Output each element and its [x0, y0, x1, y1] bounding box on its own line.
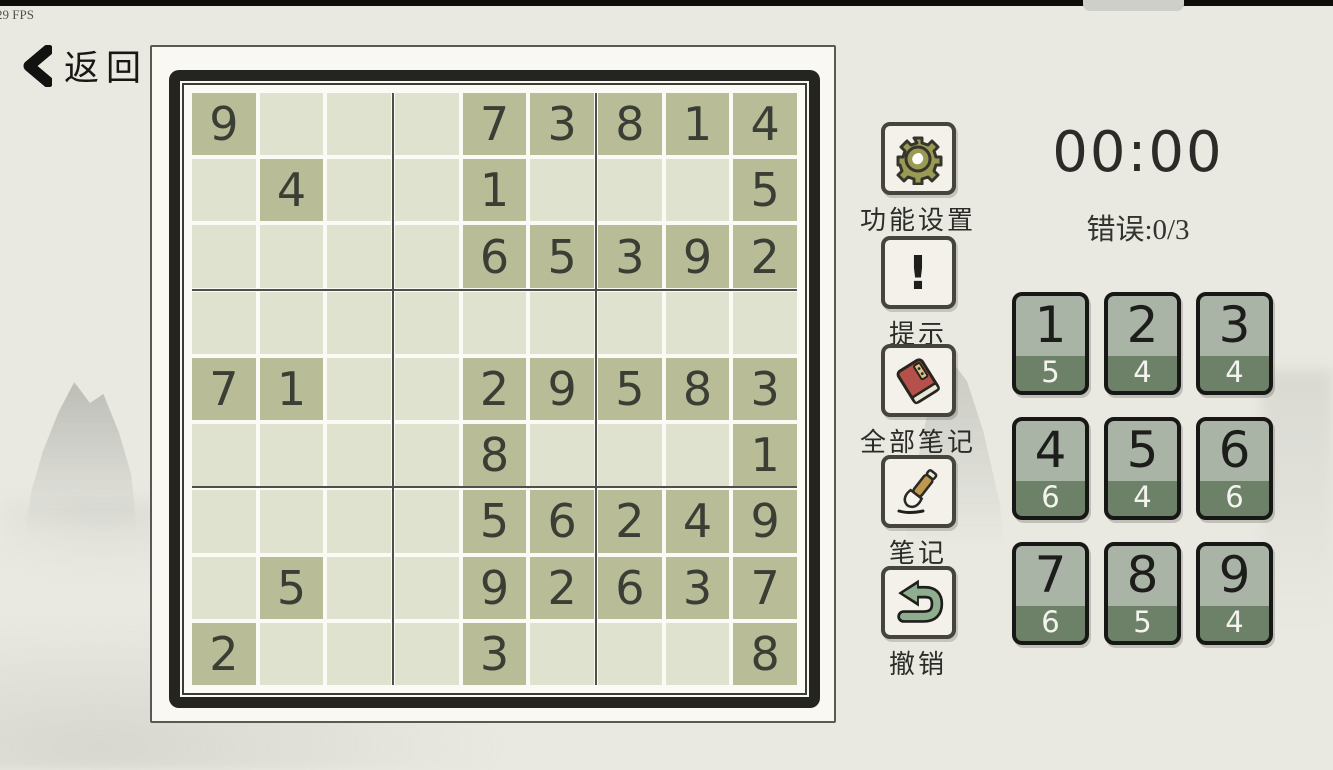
sudoku-cell-r2c3[interactable] [327, 159, 391, 221]
tool-all-notes: 全部笔记 [848, 344, 988, 459]
numpad-remaining-count: 4 [1200, 605, 1269, 641]
sudoku-cell-r4c5[interactable] [463, 292, 527, 354]
sudoku-cell-r8c1[interactable] [192, 557, 256, 619]
sudoku-cell-r3c5[interactable]: 6 [463, 225, 527, 287]
box-separator-vertical-1 [392, 93, 394, 685]
sudoku-cell-r3c7[interactable]: 3 [598, 225, 662, 287]
book-icon [891, 354, 945, 408]
numpad-remaining-count: 6 [1200, 480, 1269, 516]
sudoku-cell-r6c9[interactable]: 1 [733, 424, 797, 486]
sudoku-cell-r5c7[interactable]: 5 [598, 358, 662, 420]
sudoku-cell-r2c9[interactable]: 5 [733, 159, 797, 221]
numpad-digit: 5 [1108, 421, 1177, 480]
sudoku-cell-r8c5[interactable]: 9 [463, 557, 527, 619]
sudoku-cell-r5c2[interactable]: 1 [260, 358, 324, 420]
box-separator-horizontal-1 [192, 289, 797, 291]
sudoku-cell-r4c1[interactable] [192, 292, 256, 354]
sudoku-cell-r2c5[interactable]: 1 [463, 159, 527, 221]
sudoku-cell-r8c6[interactable]: 2 [530, 557, 594, 619]
numpad-card-7[interactable]: 76 [1012, 542, 1089, 645]
numpad-card-8[interactable]: 85 [1104, 542, 1181, 645]
sudoku-cell-r3c9[interactable]: 2 [733, 225, 797, 287]
numpad-digit: 7 [1016, 546, 1085, 605]
sudoku-cell-r6c5[interactable]: 8 [463, 424, 527, 486]
sudoku-cell-r1c8[interactable]: 1 [666, 93, 730, 155]
brush-icon [891, 465, 945, 519]
sudoku-cell-r9c5[interactable]: 3 [463, 623, 527, 685]
sudoku-cell-r7c7[interactable]: 2 [598, 490, 662, 552]
sudoku-cell-r6c7[interactable] [598, 424, 662, 486]
notes-label: 笔记 [848, 533, 988, 570]
numpad-remaining-count: 5 [1108, 605, 1177, 641]
sudoku-cell-r4c4[interactable] [395, 292, 459, 354]
sudoku-cell-r9c2[interactable] [260, 623, 324, 685]
sudoku-cell-r7c3[interactable] [327, 490, 391, 552]
numpad-card-3[interactable]: 34 [1196, 292, 1273, 395]
box-separator-horizontal-2 [192, 486, 797, 488]
numpad-card-1[interactable]: 15 [1012, 292, 1089, 395]
numpad-remaining-count: 6 [1016, 605, 1085, 641]
numpad: 152434465466768594 [1012, 292, 1273, 645]
gear-icon [892, 133, 944, 185]
back-label: 返回 [64, 40, 148, 91]
sudoku-cell-r2c6[interactable] [530, 159, 594, 221]
numpad-remaining-count: 5 [1016, 355, 1085, 391]
sudoku-cell-r9c7[interactable] [598, 623, 662, 685]
box-separator-vertical-2 [595, 93, 597, 685]
numpad-digit: 1 [1016, 296, 1085, 355]
sudoku-cell-r4c9[interactable] [733, 292, 797, 354]
sudoku-cell-r2c8[interactable] [666, 159, 730, 221]
chevron-left-icon [22, 45, 52, 87]
sudoku-cell-r7c5[interactable]: 5 [463, 490, 527, 552]
sudoku-cell-r4c7[interactable] [598, 292, 662, 354]
sudoku-cell-r9c3[interactable] [327, 623, 391, 685]
sudoku-inner-frame: 9738144156539271295838156249592637238 [182, 83, 807, 695]
sudoku-cell-r1c3[interactable] [327, 93, 391, 155]
sudoku-cell-r5c1[interactable]: 7 [192, 358, 256, 420]
sudoku-cell-r7c2[interactable] [260, 490, 324, 552]
numpad-digit: 2 [1108, 296, 1177, 355]
tool-notes: 笔记 [848, 455, 988, 570]
all-notes-button[interactable] [881, 344, 956, 417]
sudoku-outer-frame: 9738144156539271295838156249592637238 [169, 70, 820, 708]
sudoku-cell-r4c6[interactable] [530, 292, 594, 354]
numpad-digit: 3 [1200, 296, 1269, 355]
sudoku-cell-r7c4[interactable] [395, 490, 459, 552]
all-notes-label: 全部笔记 [848, 422, 988, 459]
sudoku-cell-r8c7[interactable]: 6 [598, 557, 662, 619]
sudoku-cell-r6c3[interactable] [327, 424, 391, 486]
sudoku-cell-r9c6[interactable] [530, 623, 594, 685]
sudoku-cell-r7c9[interactable]: 9 [733, 490, 797, 552]
sudoku-cell-r4c2[interactable] [260, 292, 324, 354]
numpad-remaining-count: 4 [1200, 355, 1269, 391]
sudoku-cell-r4c3[interactable] [327, 292, 391, 354]
sudoku-cell-r5c4[interactable] [395, 358, 459, 420]
tool-undo: 撤销 [848, 566, 988, 681]
sudoku-cell-r8c8[interactable]: 3 [666, 557, 730, 619]
numpad-card-4[interactable]: 46 [1012, 417, 1089, 520]
sudoku-cell-r7c1[interactable] [192, 490, 256, 552]
numpad-card-2[interactable]: 24 [1104, 292, 1181, 395]
sudoku-cell-r9c1[interactable]: 2 [192, 623, 256, 685]
back-button[interactable]: 返回 [22, 40, 148, 91]
numpad-card-6[interactable]: 66 [1196, 417, 1273, 520]
sudoku-cell-r5c6[interactable]: 9 [530, 358, 594, 420]
numpad-card-9[interactable]: 94 [1196, 542, 1273, 645]
sudoku-cell-r1c9[interactable]: 4 [733, 93, 797, 155]
sudoku-grid: 9738144156539271295838156249592637238 [192, 93, 797, 685]
sudoku-cell-r1c6[interactable]: 3 [530, 93, 594, 155]
settings-label: 功能设置 [848, 200, 988, 237]
sudoku-cell-r3c4[interactable] [395, 225, 459, 287]
sudoku-cell-r9c4[interactable] [395, 623, 459, 685]
sudoku-cell-r3c2[interactable] [260, 225, 324, 287]
sudoku-cell-r6c4[interactable] [395, 424, 459, 486]
sudoku-cell-r1c2[interactable] [260, 93, 324, 155]
sudoku-cell-r8c2[interactable]: 5 [260, 557, 324, 619]
sudoku-cell-r2c1[interactable] [192, 159, 256, 221]
sudoku-cell-r5c3[interactable] [327, 358, 391, 420]
numpad-digit: 4 [1016, 421, 1085, 480]
sudoku-cell-r5c8[interactable]: 8 [666, 358, 730, 420]
numpad-digit: 6 [1200, 421, 1269, 480]
sudoku-cell-r8c4[interactable] [395, 557, 459, 619]
top-drawer-handle [1083, 0, 1184, 11]
sudoku-cell-r6c6[interactable] [530, 424, 594, 486]
sudoku-cell-r1c1[interactable]: 9 [192, 93, 256, 155]
error-counter: 错误:0/3 [1043, 206, 1233, 248]
tool-settings: 功能设置 [848, 122, 988, 237]
sudoku-cell-r9c9[interactable]: 8 [733, 623, 797, 685]
numpad-digit: 9 [1200, 546, 1269, 605]
settings-button[interactable] [881, 122, 956, 195]
numpad-remaining-count: 6 [1016, 480, 1085, 516]
sudoku-cell-r1c7[interactable]: 8 [598, 93, 662, 155]
sudoku-cell-r3c6[interactable]: 5 [530, 225, 594, 287]
sudoku-cell-r3c1[interactable] [192, 225, 256, 287]
sudoku-cell-r7c8[interactable]: 4 [666, 490, 730, 552]
numpad-digit: 8 [1108, 546, 1177, 605]
numpad-card-5[interactable]: 54 [1104, 417, 1181, 520]
numpad-remaining-count: 4 [1108, 355, 1177, 391]
sudoku-cell-r6c2[interactable] [260, 424, 324, 486]
numpad-remaining-count: 4 [1108, 480, 1177, 516]
tool-hint: ! 提示 [848, 236, 988, 351]
notes-button[interactable] [881, 455, 956, 528]
exclamation-icon: ! [908, 250, 929, 296]
sudoku-board-panel: 9738144156539271295838156249592637238 [150, 45, 836, 723]
hint-button[interactable]: ! [881, 236, 956, 309]
undo-icon [891, 576, 945, 630]
sudoku-cell-r1c4[interactable] [395, 93, 459, 155]
sudoku-cell-r3c3[interactable] [327, 225, 391, 287]
sudoku-cell-r7c6[interactable]: 6 [530, 490, 594, 552]
sudoku-cell-r8c3[interactable] [327, 557, 391, 619]
sudoku-cell-r2c2[interactable]: 4 [260, 159, 324, 221]
fps-counter: 29 FPS [0, 7, 34, 23]
sudoku-cell-r2c4[interactable] [395, 159, 459, 221]
sudoku-cell-r4c8[interactable] [666, 292, 730, 354]
sudoku-cell-r3c8[interactable]: 9 [666, 225, 730, 287]
sudoku-cell-r6c8[interactable] [666, 424, 730, 486]
sudoku-cell-r2c7[interactable] [598, 159, 662, 221]
ink-mountain-left [25, 382, 137, 532]
sudoku-cell-r5c5[interactable]: 2 [463, 358, 527, 420]
undo-button[interactable] [881, 566, 956, 639]
sudoku-cell-r9c8[interactable] [666, 623, 730, 685]
undo-label: 撤销 [848, 644, 988, 681]
sudoku-cell-r1c5[interactable]: 7 [463, 93, 527, 155]
sudoku-cell-r6c1[interactable] [192, 424, 256, 486]
sudoku-cell-r8c9[interactable]: 7 [733, 557, 797, 619]
sudoku-cell-r5c9[interactable]: 3 [733, 358, 797, 420]
timer: 00:00 [1043, 120, 1233, 185]
